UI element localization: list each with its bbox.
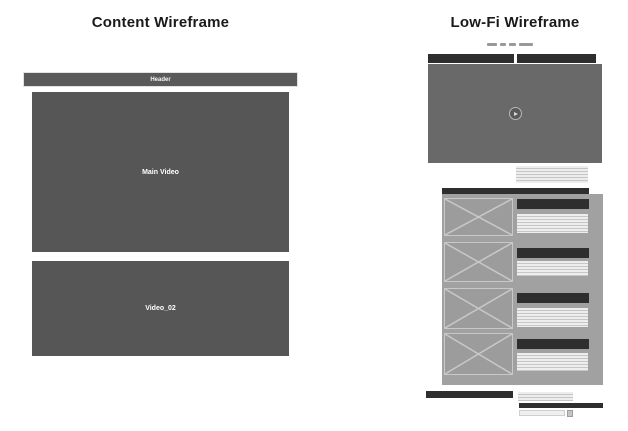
item-title-bar bbox=[517, 199, 589, 209]
tab-bar-left bbox=[428, 54, 514, 63]
image-placeholder bbox=[444, 333, 513, 375]
item-text-lines bbox=[517, 353, 588, 371]
video-02-box: Video_02 bbox=[32, 261, 289, 356]
video-02-label: Video_02 bbox=[145, 305, 176, 312]
item-title-bar bbox=[517, 339, 589, 349]
video-description-lines bbox=[516, 166, 588, 183]
nav-dash bbox=[509, 43, 516, 46]
footer-text-lines bbox=[518, 392, 573, 401]
header-bar-label: Header bbox=[150, 77, 170, 83]
play-icon bbox=[514, 112, 518, 116]
item-text-lines bbox=[517, 308, 588, 327]
footer-button-placeholder bbox=[567, 410, 573, 417]
main-video-label: Main Video bbox=[142, 169, 179, 176]
x-cross-icon bbox=[445, 334, 512, 374]
wireframe-sheet: Content Wireframe Header Main Video Vide… bbox=[0, 0, 628, 431]
footer-input-placeholder bbox=[519, 410, 565, 416]
x-cross-icon bbox=[445, 289, 512, 328]
play-button bbox=[509, 107, 522, 120]
nav-dash bbox=[487, 43, 497, 46]
content-wireframe-title: Content Wireframe bbox=[24, 14, 297, 31]
item-text-lines bbox=[517, 261, 588, 276]
main-video-box: Main Video bbox=[32, 92, 289, 252]
item-title-bar bbox=[517, 293, 589, 303]
lowfi-wireframe-title: Low-Fi Wireframe bbox=[428, 14, 602, 31]
image-placeholder bbox=[444, 288, 513, 329]
nav-dash bbox=[500, 43, 506, 46]
tab-bar-right bbox=[517, 54, 596, 63]
footer-divider-bar bbox=[519, 403, 603, 408]
image-placeholder bbox=[444, 242, 513, 282]
nav-dash bbox=[519, 43, 533, 46]
item-text-lines bbox=[517, 214, 588, 233]
header-bar: Header bbox=[24, 73, 297, 86]
x-cross-icon bbox=[445, 243, 512, 281]
image-placeholder bbox=[444, 198, 513, 236]
item-title-bar bbox=[517, 248, 589, 258]
x-cross-icon bbox=[445, 199, 512, 235]
footer-title-bar bbox=[426, 391, 513, 398]
video-player-placeholder bbox=[428, 64, 602, 163]
list-panel bbox=[442, 194, 603, 385]
